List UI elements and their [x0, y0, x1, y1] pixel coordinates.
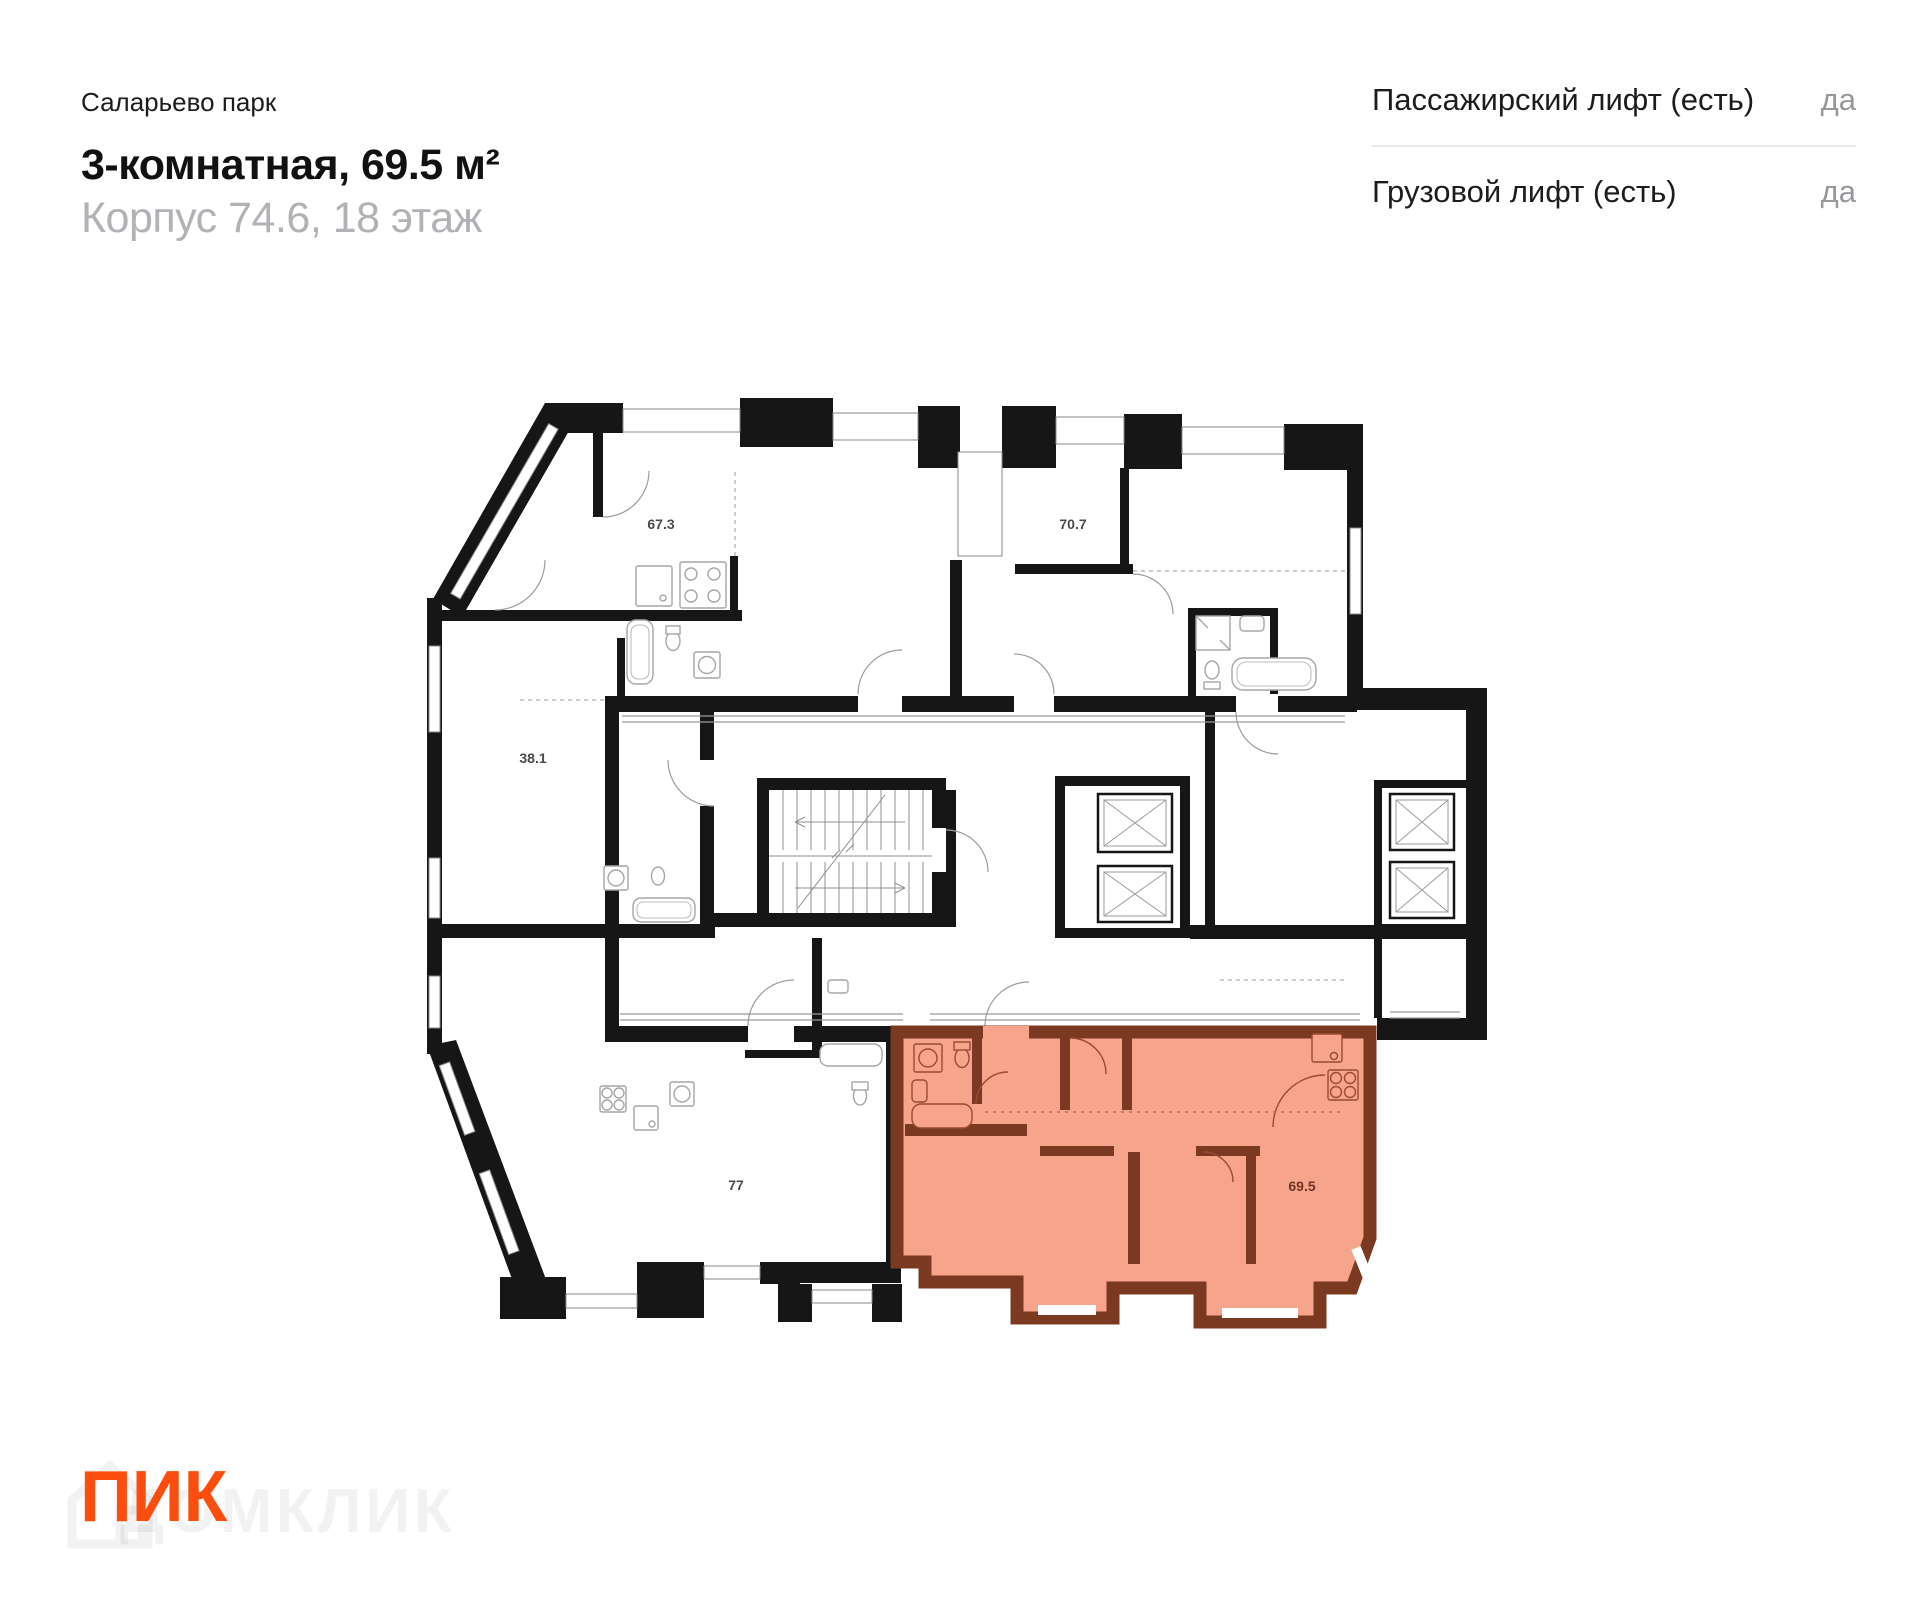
pik-logo: ПИК: [80, 1456, 227, 1538]
selected-apartment: [897, 1026, 1373, 1322]
floor-plan: 67.3 70.7 38.1 77 69.5: [0, 0, 1920, 1600]
floor-plan-drawing: 67.3 70.7 38.1 77 69.5: [0, 0, 1920, 1600]
door-openings: [700, 694, 1278, 1044]
page: Саларьево парк 3-комнатная, 69.5 м² Корп…: [0, 0, 1920, 1600]
area-label-69-5: 69.5: [1288, 1178, 1315, 1194]
corridor-lines: [620, 716, 1460, 1020]
elevator-shafts: [1098, 794, 1454, 922]
area-label-77: 77: [728, 1177, 744, 1193]
staircase: [769, 790, 932, 913]
area-label-38-1: 38.1: [519, 750, 546, 766]
area-label-70-7: 70.7: [1059, 516, 1086, 532]
area-label-67-3: 67.3: [647, 516, 674, 532]
